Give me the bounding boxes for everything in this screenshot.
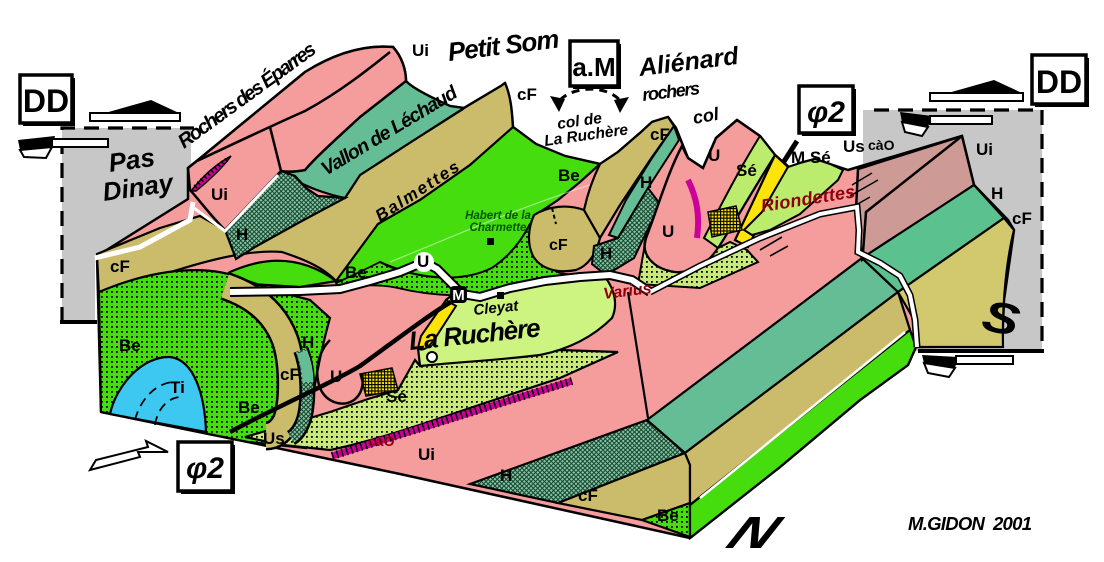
svg-text:Be: Be [657, 506, 679, 525]
svg-text:càO: càO [868, 137, 895, 153]
svg-text:DD: DD [1036, 64, 1082, 100]
svg-text:H: H [991, 184, 1003, 203]
svg-text:M.GIDON 2001: M.GIDON 2001 [908, 513, 1032, 534]
svg-text:Ui: Ui [976, 140, 993, 159]
svg-text:H: H [302, 333, 314, 352]
svg-text:cF: cF [280, 365, 300, 384]
svg-text:U: U [330, 367, 342, 386]
svg-text:H: H [640, 173, 652, 192]
svg-text:Be: Be [119, 336, 141, 355]
svg-text:Us: Us [263, 429, 285, 448]
svg-text:Ui: Ui [211, 185, 228, 204]
svg-text:cF: cF [1012, 209, 1032, 228]
svg-text:Ui: Ui [412, 41, 429, 60]
svg-text:cF: cF [578, 486, 598, 505]
svg-text:Be: Be [238, 398, 260, 417]
svg-text:DD: DD [23, 83, 69, 119]
svg-text:càO: càO [368, 433, 395, 449]
svg-text:H: H [236, 225, 248, 244]
svg-text:U: U [708, 146, 720, 165]
svg-text:Sé: Sé [386, 387, 407, 406]
svg-text:cF: cF [517, 85, 537, 104]
svg-text:Ui: Ui [418, 445, 435, 464]
svg-text:U: U [662, 222, 674, 241]
svg-text:Be: Be [558, 166, 580, 185]
svg-text:H: H [600, 244, 612, 263]
svg-text:U: U [417, 252, 429, 271]
svg-text:Us: Us [843, 137, 865, 156]
svg-text:cF: cF [549, 237, 568, 254]
svg-text:Habert de la: Habert de la [465, 210, 531, 222]
svg-text:φ2: φ2 [807, 96, 845, 129]
svg-text:M: M [452, 287, 465, 304]
svg-text:φ2: φ2 [186, 452, 224, 485]
svg-text:cF: cF [650, 125, 670, 144]
svg-text:a.M: a.M [572, 52, 615, 82]
svg-text:M Sé: M Sé [791, 148, 831, 167]
svg-text:cF: cF [110, 257, 130, 276]
svg-text:H: H [500, 466, 512, 485]
svg-text:Ti: Ti [170, 378, 185, 397]
svg-text:Sé: Sé [736, 161, 757, 180]
svg-text:Be: Be [345, 263, 367, 282]
svg-text:Charmette: Charmette [470, 222, 527, 234]
